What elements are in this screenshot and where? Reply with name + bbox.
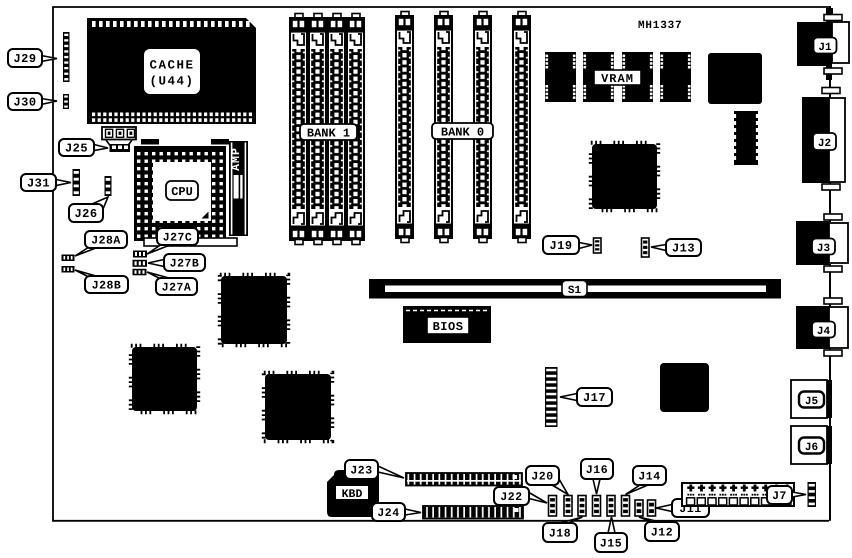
svg-text:J23: J23	[350, 465, 372, 478]
svg-text:J4: J4	[817, 326, 831, 338]
svg-text:J7: J7	[772, 490, 787, 503]
svg-text:J22: J22	[500, 491, 522, 504]
svg-text:J27B: J27B	[170, 258, 200, 271]
svg-text:J19: J19	[549, 239, 572, 253]
svg-text:KBD: KBD	[342, 488, 363, 501]
svg-text:J18: J18	[549, 528, 571, 541]
svg-text:AMP: AMP	[230, 147, 243, 171]
svg-text:J16: J16	[586, 464, 608, 477]
svg-text:J3: J3	[817, 243, 831, 255]
svg-text:J30: J30	[13, 96, 36, 110]
svg-text:BANK 0: BANK 0	[441, 126, 484, 140]
svg-text:VRAM: VRAM	[601, 72, 634, 86]
svg-text:J24: J24	[377, 507, 399, 520]
svg-text:J1: J1	[818, 42, 832, 54]
svg-text:J17: J17	[583, 391, 606, 405]
svg-text:S1: S1	[568, 285, 582, 297]
svg-text:J26: J26	[74, 207, 97, 221]
svg-text:BIOS: BIOS	[433, 320, 464, 334]
svg-text:J15: J15	[600, 538, 622, 551]
svg-text:J25: J25	[65, 142, 88, 156]
svg-text:J14: J14	[638, 471, 660, 484]
svg-text:J28A: J28A	[91, 235, 121, 248]
svg-text:J20: J20	[531, 471, 553, 484]
svg-text:J27C: J27C	[163, 232, 193, 245]
svg-text:CPU: CPU	[171, 185, 193, 199]
svg-text:(U44): (U44)	[149, 75, 194, 89]
svg-text:J27A: J27A	[162, 282, 192, 295]
svg-text:J6: J6	[805, 442, 818, 454]
svg-text:J29: J29	[13, 52, 36, 66]
svg-text:J2: J2	[818, 138, 831, 150]
svg-text:J31: J31	[27, 177, 50, 191]
svg-text:J13: J13	[672, 242, 695, 256]
svg-text:BANK 1: BANK 1	[307, 127, 350, 141]
svg-text:J5: J5	[805, 396, 819, 408]
svg-text:CACHE: CACHE	[149, 59, 194, 73]
svg-text:MH1337: MH1337	[638, 20, 682, 32]
svg-text:J28B: J28B	[92, 280, 122, 293]
svg-text:J12: J12	[651, 527, 673, 540]
